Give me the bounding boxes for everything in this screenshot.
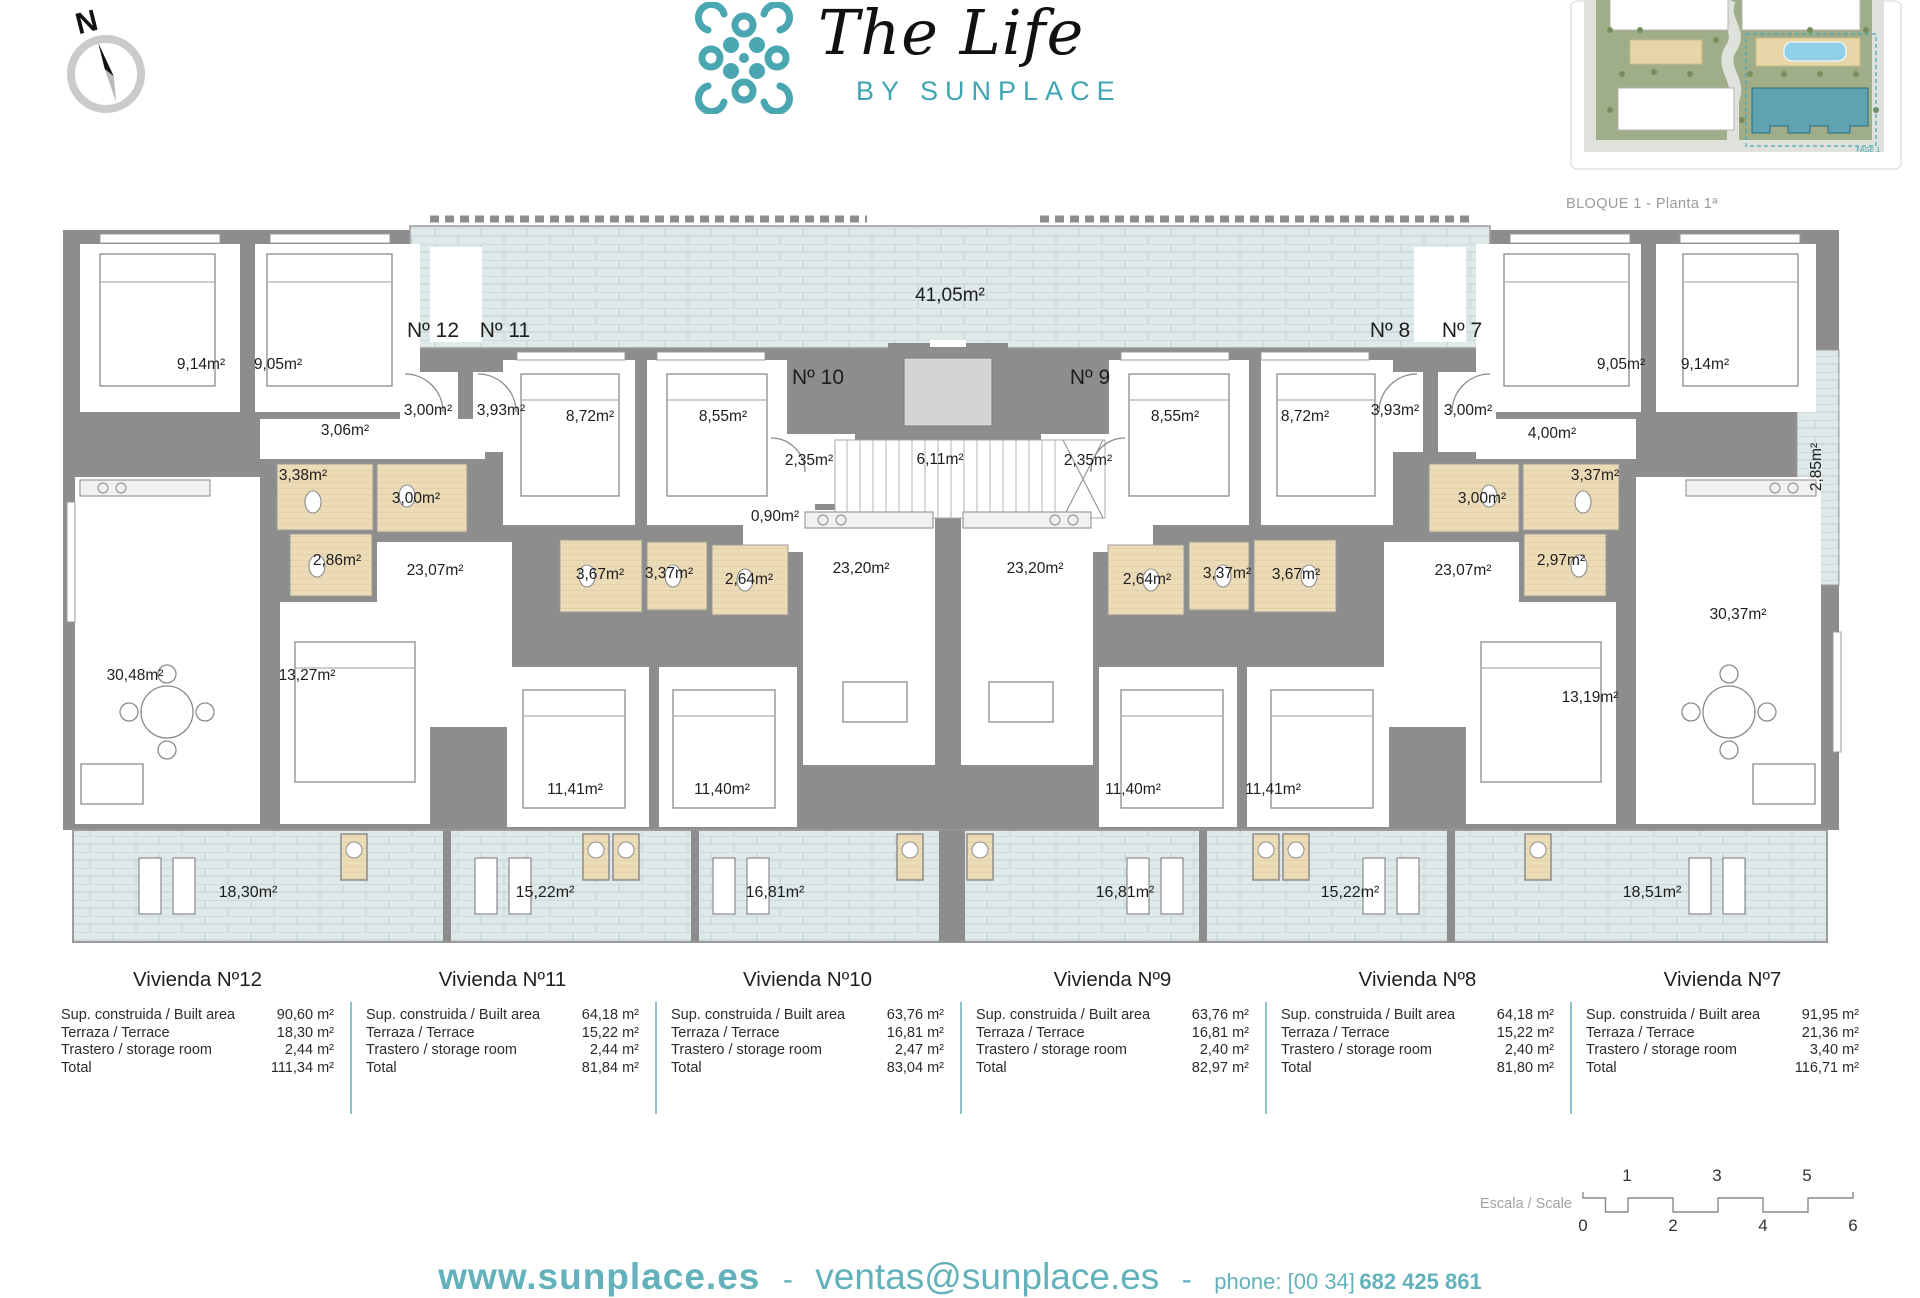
unit-card: Vivienda Nº12 Sup. construida / Built ar… (45, 968, 350, 1077)
room-area-label: 11,40m² (694, 781, 750, 799)
unit-row-storage: Trastero / storage room 3,40 m² (1586, 1042, 1859, 1060)
footer-phone-label: phone: [00 34] (1214, 1269, 1355, 1294)
unit-row-storage: Trastero / storage room 2,44 m² (366, 1042, 639, 1060)
unit-row-terrace: Terraza / Terrace 21,36 m² (1586, 1025, 1859, 1043)
room-area-label: 2,85m² (1808, 443, 1826, 491)
footer: www.sunplace.es - ventas@sunplace.es - p… (0, 1256, 1920, 1298)
room-area-label: 3,37m² (1571, 467, 1619, 485)
brand-title: The Life (818, 0, 1148, 69)
room-area-label: 3,93m² (477, 402, 525, 420)
room-area-label: 3,00m² (392, 490, 440, 508)
room-area-label: 30,48m² (107, 667, 164, 685)
room-area-label: 3,06m² (321, 422, 369, 440)
room-area-label: 2,35m² (1064, 452, 1112, 470)
unit-number-label: Nº 11 (480, 319, 530, 343)
room-area-label: 8,55m² (1151, 408, 1199, 426)
unit-row-terrace: Terraza / Terrace 15,22 m² (1281, 1025, 1554, 1043)
room-area-label: 2,35m² (785, 452, 833, 470)
unit-title: Vivienda Nº8 (1281, 968, 1554, 992)
unit-row-total: Total 83,04 m² (671, 1060, 944, 1078)
unit-row-built-area: Sup. construida / Built area 63,76 m² (671, 1007, 944, 1025)
footer-email-link[interactable]: ventas@sunplace.es (815, 1256, 1159, 1297)
room-area-label: 18,30m² (219, 884, 278, 902)
room-area-label: 23,07m² (1435, 562, 1492, 580)
room-area-label: 3,00m² (1444, 402, 1492, 420)
compass: N (58, 6, 153, 121)
room-area-label: 23,07m² (407, 562, 464, 580)
unit-row-built-area: Sup. construida / Built area 90,60 m² (61, 1007, 334, 1025)
room-area-label: 15,22m² (1321, 884, 1380, 902)
unit-row-built-area: Sup. construida / Built area 64,18 m² (1281, 1007, 1554, 1025)
unit-card: Vivienda Nº7 Sup. construida / Built are… (1570, 968, 1875, 1077)
room-area-label: 11,41m² (1245, 781, 1301, 799)
unit-number-label: Nº 8 (1370, 319, 1410, 343)
compass-icon (58, 6, 153, 121)
unit-title: Vivienda Nº11 (366, 968, 639, 992)
siteplan-thumbnail: FASE 1 (1570, 0, 1902, 170)
scale-number: 3 (1712, 1166, 1721, 1186)
unit-card: Vivienda Nº9 Sup. construida / Built are… (960, 968, 1265, 1077)
room-area-label: 3,38m² (279, 467, 327, 485)
room-area-label: 2,86m² (313, 552, 361, 570)
floor-plan-drawing (55, 212, 1855, 952)
room-area-label: 8,72m² (1281, 408, 1329, 426)
siteplan-caption: BLOQUE 1 - Planta 1ª (1566, 196, 1718, 212)
unit-row-storage: Trastero / storage room 2,44 m² (61, 1042, 334, 1060)
room-area-label: 3,37m² (1203, 565, 1251, 583)
room-area-label: 3,37m² (645, 565, 693, 583)
room-area-label: 41,05m² (915, 285, 985, 307)
room-area-label: 9,14m² (1681, 356, 1729, 374)
room-area-label: 3,67m² (576, 566, 624, 584)
room-area-label: 6,11m² (916, 451, 963, 469)
room-area-label: 9,14m² (177, 356, 225, 374)
unit-card: Vivienda Nº8 Sup. construida / Built are… (1265, 968, 1570, 1077)
unit-row-built-area: Sup. construida / Built area 91,95 m² (1586, 1007, 1859, 1025)
unit-number-label: Nº 10 (792, 366, 844, 390)
room-area-label: 30,37m² (1710, 606, 1767, 624)
room-area-label: 23,20m² (833, 560, 890, 578)
unit-row-built-area: Sup. construida / Built area 63,76 m² (976, 1007, 1249, 1025)
unit-row-terrace: Terraza / Terrace 16,81 m² (976, 1025, 1249, 1043)
unit-card: Vivienda Nº11 Sup. construida / Built ar… (350, 968, 655, 1077)
unit-row-total: Total 81,80 m² (1281, 1060, 1554, 1078)
unit-summary-tables: Vivienda Nº12 Sup. construida / Built ar… (45, 968, 1875, 1077)
scale-number: 5 (1802, 1166, 1811, 1186)
room-area-label: 2,64m² (725, 571, 773, 589)
scale-number: 0 (1578, 1216, 1587, 1236)
unit-row-terrace: Terraza / Terrace 16,81 m² (671, 1025, 944, 1043)
scale-number: 4 (1758, 1216, 1767, 1236)
footer-website-link[interactable]: www.sunplace.es (438, 1256, 760, 1297)
unit-row-terrace: Terraza / Terrace 18,30 m² (61, 1025, 334, 1043)
sunplace-knot-icon (688, 2, 800, 114)
unit-row-total: Total 82,97 m² (976, 1060, 1249, 1078)
unit-title: Vivienda Nº10 (671, 968, 944, 992)
room-area-label: 9,05m² (1597, 356, 1645, 374)
room-area-label: 8,72m² (566, 408, 614, 426)
unit-number-label: Nº 9 (1070, 366, 1110, 390)
unit-row-storage: Trastero / storage room 2,47 m² (671, 1042, 944, 1060)
unit-card: Vivienda Nº10 Sup. construida / Built ar… (655, 968, 960, 1077)
scale-number: 1 (1622, 1166, 1631, 1186)
room-area-label: 8,55m² (699, 408, 747, 426)
unit-row-terrace: Terraza / Terrace 15,22 m² (366, 1025, 639, 1043)
unit-row-total: Total 111,34 m² (61, 1060, 334, 1078)
room-area-label: 13,19m² (1562, 689, 1619, 707)
room-area-label: 3,00m² (404, 402, 452, 420)
unit-number-label: Nº 12 (407, 319, 459, 343)
scale-bar: Escala / Scale 1 3 5 0 2 4 6 (1480, 1160, 1890, 1244)
scale-number: 6 (1848, 1216, 1857, 1236)
room-area-label: 13,27m² (279, 667, 336, 685)
scale-bar-graphic (1575, 1190, 1867, 1220)
footer-phone-number: 682 425 861 (1359, 1269, 1481, 1294)
room-area-label: 4,00m² (1528, 425, 1576, 443)
room-area-label: 2,64m² (1123, 571, 1171, 589)
unit-row-storage: Trastero / storage room 2,40 m² (976, 1042, 1249, 1060)
brand-subtitle: BY SUNPLACE (856, 76, 1122, 107)
room-area-label: 16,81m² (746, 884, 805, 902)
scale-number: 2 (1668, 1216, 1677, 1236)
room-area-label: 3,93m² (1371, 402, 1419, 420)
floor-plan: 41,05m² 9,14m² 9,05m² 9,05m² 9,14m² 3,00… (55, 212, 1855, 952)
scale-label: Escala / Scale (1480, 1196, 1572, 1212)
unit-number-label: Nº 7 (1442, 319, 1482, 343)
unit-title: Vivienda Nº12 (61, 968, 334, 992)
unit-row-storage: Trastero / storage room 2,40 m² (1281, 1042, 1554, 1060)
siteplan-image (1570, 0, 1902, 170)
siteplan-fase-label: FASE 1 (1856, 147, 1880, 154)
room-area-label: 11,41m² (547, 781, 603, 799)
room-area-label: 2,97m² (1537, 552, 1585, 570)
room-area-label: 11,40m² (1105, 781, 1161, 799)
room-area-label: 3,00m² (1458, 490, 1506, 508)
room-area-label: 16,81m² (1096, 884, 1155, 902)
room-area-label: 3,67m² (1272, 566, 1320, 584)
room-area-label: 15,22m² (516, 884, 575, 902)
room-area-label: 23,20m² (1007, 560, 1064, 578)
room-area-label: 18,51m² (1623, 884, 1682, 902)
unit-title: Vivienda Nº7 (1586, 968, 1859, 992)
unit-row-built-area: Sup. construida / Built area 64,18 m² (366, 1007, 639, 1025)
room-area-label: 0,90m² (751, 508, 799, 526)
room-area-label: 9,05m² (254, 356, 302, 374)
unit-row-total: Total 81,84 m² (366, 1060, 639, 1078)
unit-title: Vivienda Nº9 (976, 968, 1249, 992)
unit-row-total: Total 116,71 m² (1586, 1060, 1859, 1078)
